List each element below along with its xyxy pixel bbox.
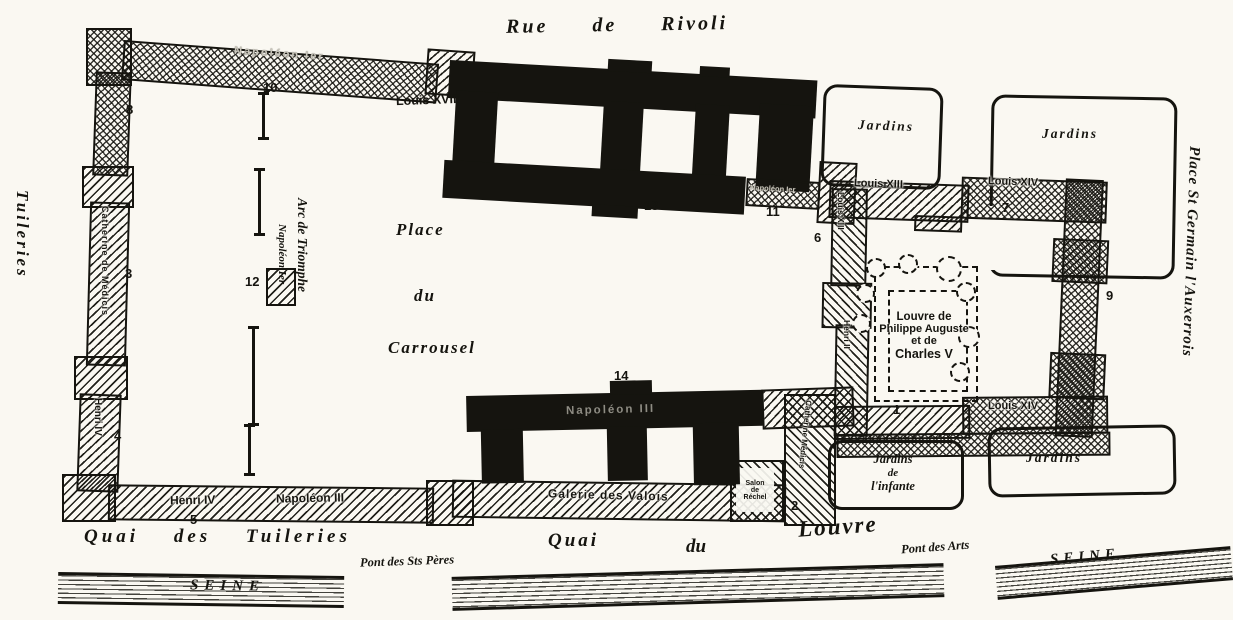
place-st-germain-label: Place St Germain l'Auxerrois [1175, 146, 1202, 446]
napoleon-iii-south-label: Napoléon III [566, 403, 655, 417]
map-number-9: 9 [1106, 288, 1113, 303]
louis-xviii-label: Louis XVIII [396, 92, 460, 108]
north-block-bump-3 [592, 204, 639, 219]
pont-des-arts-label: Pont des Arts [901, 538, 970, 558]
medieval-label-line3: et de [911, 335, 937, 347]
seine-label-left: SEINE [190, 577, 265, 595]
south-block-connector-mid [607, 426, 648, 481]
medieval-label-line4: Charles V [895, 347, 953, 361]
map-number-1: 1 [893, 402, 900, 417]
map-number-12: 12 [245, 274, 259, 289]
north-wing-bump [914, 215, 963, 233]
map-number-3: 3 [125, 266, 132, 281]
rue-de-rivoli-label: Rue de Rivoli [506, 12, 728, 39]
jardins-label-top-left: Jardins [858, 117, 915, 135]
map-number-6: 6 [814, 230, 821, 245]
north-block-connector-mid1 [600, 101, 644, 179]
map-number-13: 13 [644, 198, 658, 213]
wall-segment [248, 426, 251, 474]
henri-ii-west-label: Henri II [842, 320, 852, 420]
arc-napoleon-label: Napoléon Ier [276, 224, 288, 342]
map-number-7: 7 [1002, 200, 1009, 215]
infante-line2: de [888, 467, 898, 479]
map-number-10: 10 [263, 80, 277, 95]
pont-des-sts-peres-label: Pont des Sts Pères [360, 552, 455, 570]
quai-des-tuileries-label: Quai des Tuileries [84, 526, 351, 548]
map-number-4: 4 [114, 428, 121, 443]
map-number-11: 11 [766, 204, 780, 219]
gallery-henri-iv-napoleon-iii [108, 484, 434, 523]
north-block-bump-1 [608, 59, 653, 73]
jardins-infante-label: Jardins de l'infante [832, 444, 954, 502]
medieval-tower [936, 256, 962, 282]
tuileries-palace-north-segment [92, 71, 132, 176]
seine-band-middle [452, 563, 945, 611]
north-block-bump-2 [699, 66, 730, 78]
wall-segment [252, 328, 255, 424]
arc-de-triomphe-label: Arc de Triomphe [294, 198, 310, 346]
tuileries-label: Tuileries [12, 190, 32, 345]
cour-carree-east-wing [1045, 176, 1116, 438]
infante-line3: l'infante [871, 479, 915, 494]
south-block-connector-left [481, 429, 524, 484]
medieval-tower [866, 258, 886, 278]
quai-du-louvre-quai: Quai [548, 530, 599, 552]
louis-xiii-north-label: Louis XIII [854, 177, 903, 191]
map-number-2: 2 [791, 498, 798, 513]
jardins-label-bottom-right: Jardins [1026, 450, 1082, 466]
henri-iv-gallery-label: Henri IV [170, 493, 216, 508]
catherine-medicis-tuileries-label: Catherine de Médicis [100, 206, 110, 362]
louis-xiv-south-label: Louis XIV [988, 400, 1038, 412]
jardins-label-top-right: Jardins [1042, 126, 1098, 142]
louvre-tuileries-plan: Salon de Réchel Napoléon III [0, 0, 1233, 620]
wall-segment [262, 94, 265, 138]
place-du-carrousel-line1: Place [396, 220, 445, 240]
place-du-carrousel-line3: Carrousel [388, 338, 476, 358]
medieval-label-line1: Louvre de [897, 311, 952, 323]
quai-du-louvre-du: du [686, 536, 706, 558]
medieval-tower [898, 254, 918, 274]
place-du-carrousel-line2: du [414, 286, 436, 306]
louis-xiii-west-label: Louis XIII [836, 192, 846, 304]
north-block-connector-mid2 [692, 104, 730, 182]
quai-du-louvre-louvre: Louvre [797, 511, 878, 542]
south-block-connector-right [693, 422, 740, 485]
wall-segment [258, 170, 261, 234]
map-number-14: 14 [614, 368, 628, 383]
map-number-8: 8 [126, 102, 133, 117]
medieval-label-line2: Philippe Auguste [879, 323, 968, 335]
east-wing-pavilion-bottom [1048, 352, 1106, 400]
map-number-5: 5 [190, 512, 197, 527]
east-wing-pavilion-top [1051, 238, 1109, 284]
henri-iv-tuileries-label: Henri IV [92, 398, 103, 486]
infante-line1: Jardins [874, 452, 913, 467]
medieval-louvre-label: Louvre de Philippe Auguste et de Charles… [862, 294, 986, 378]
napoleon-iii-gallery-label: Napoléon III [276, 490, 344, 505]
louis-xiv-north-label: Louis XIV [988, 175, 1039, 189]
